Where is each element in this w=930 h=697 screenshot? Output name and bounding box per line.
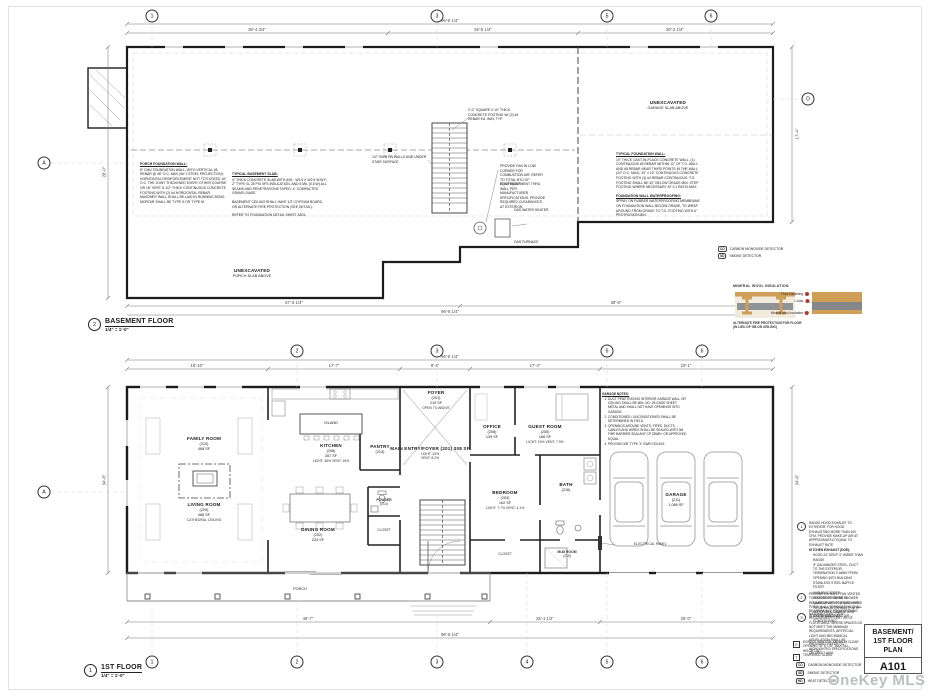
watermark: OneKey MLS [828,672,926,689]
column-footing-note: 2'-0" SQUARE X 10" THICK CONCRETE FOOTIN… [468,108,522,122]
dimension-label: 96'-8 1/4" [441,632,459,637]
callout-marker-icon [805,299,809,303]
room-label-foyer-note: OPEN TO ABOVE [422,406,450,410]
callout-marker-icon [805,292,809,296]
plan-name: 1ST FLOOR [101,664,142,673]
room-label-closet: CLOSET [377,528,391,532]
garage-note-item: OPENINGS AROUND VENTS, PIPES, DUCTS, CAB… [608,424,688,441]
legend-co: CO CARBON MONOXIDE DETECTOR [796,662,861,668]
grid-bubble: 2 [291,656,304,669]
keyed-note-marker: 2 [797,593,806,602]
room-label-bedroom: BEDROOM (203) 162 SF LIGHT: 7.7% VENT: 4… [486,490,524,510]
room-label-foyer: FOYER (201) 219 SF [428,390,445,406]
grid-bubble: 5 [601,345,614,358]
plan-name: BASEMENT FLOOR [105,318,174,327]
garage-note-item: PROVIDE 5/8" TYPE 'X' GWB CEILING. [608,442,688,446]
first-floor-dimensions [106,358,794,640]
porch-foundation-note: PORCH FOUNDATION WALL: 8" CMU FOUNDATION… [140,162,228,204]
dimension-label: 39'-5" [611,300,622,305]
egress-window-note: E EGRESS WINDOW: MINIMUM CLEAR OPENING O… [793,640,861,653]
grid-bubble: 1 [146,10,159,23]
electrical-panel-label: ELECTRICAL PANEL [634,542,667,546]
room-label-powder: POWDER (214) [376,498,391,507]
sheet-title: BASEMENT/ 1ST FLOOR PLAN [865,625,921,658]
detail-callout-mineral-wool: Mineral wool insulation [771,311,809,315]
grid-bubble: 5 [601,656,614,669]
room-label-family: FAMILY ROOM (210) 468 SF [187,436,221,452]
unexcavated-porch-label: UNEXCAVATED PORCH SLAB ABOVE [233,268,271,279]
dimension-label: 96'-8 1/4" [441,354,459,359]
grid-bubble: 2 [291,345,304,358]
dimension-label: 17'-4" [530,363,541,368]
dimension-label: 96'-8 1/4" [441,309,459,314]
garage-note-item: DUCT PENETRATING INTERIOR GARAGE WALL OR… [608,397,688,414]
furnace-label: GAS FURNACE [514,240,556,245]
detail-callout-ijoist: I-Joist [794,299,809,303]
room-label-mudroom: MUD ROOM (215) [557,550,576,559]
room-label-pantry: PANTRY (213) [370,444,390,455]
dimension-label: 30'-2 1/4" [666,27,684,32]
plan-scale: 1/4" = 1'-0" [101,673,142,678]
plan-number-bubble: 1 [84,664,97,677]
dimension-label: 25'-0" [681,616,692,621]
dimension-label: 25'-1 1/2" [536,616,554,621]
vent-equipment-note: VENT EQUIPMENT THRU WALL PER MANUFACTURE… [500,182,546,210]
room-label-island: ISLAND [324,421,338,426]
basement-legend-sd: SD SMOKE DETECTOR [718,253,761,259]
dimension-label: 23'-1" [681,363,692,368]
detail-title: MINERAL WOOL INSULATION [733,284,789,288]
dimension-label: 18'-10" [191,363,204,368]
note-marker: E [793,641,800,648]
dimension-label: 34'-8" [102,475,107,486]
keyed-note-marker: 3 [797,613,806,622]
basement-plan-title: 2 BASEMENT FLOOR 1/4" = 1'-0" [88,318,174,332]
callout-marker-icon [805,311,809,315]
grid-bubble: A [38,157,51,170]
dimension-label: 26'-5 1/4" [474,27,492,32]
detail-callout-floor-sheathing: Floor sheathing [781,292,809,296]
room-label-office: OFFICE (206) 139 SF [483,424,501,440]
dimension-label: 28'-0" [102,167,107,178]
dimension-label: 36'-4 3/4" [248,27,266,32]
room-label-living: LIVING ROOM (209) 468 SF CATHEDRAL CEILI… [187,502,222,522]
grid-bubble: 4 [521,656,534,669]
room-label-entry: MAIN ENTRY/FOYER (201) 308 SF LIGHT: 24%… [390,446,469,461]
grid-bubble: 6 [705,10,718,23]
grid-bubble: 6 [696,656,709,669]
unexcavated-garage-label: UNEXCAVATED GARAGE SLAB ABOVE [648,100,689,111]
grid-bubble: A [38,486,51,499]
room-label-bath: BATH (216) [559,482,572,493]
foundation-wall-note: TYPICAL FOUNDATION WALL: 10" THICK CAST-… [616,152,704,218]
room-label-guest: GUEST ROOM (205) 186 SF LIGHT: 15% VENT:… [526,424,564,444]
grid-bubble: D [802,93,815,106]
dimension-label: 34'-8" [795,475,800,486]
room-label-dining: DINING ROOM (202) 224 SF [301,527,335,543]
grid-bubble: 6 [696,345,709,358]
keyed-note-marker: 1 [797,522,806,531]
tempered-glass-note: T TEMPERED GLASS [793,653,861,661]
dimension-label: 46'-7" [303,616,314,621]
title-block: BASEMENT/ 1ST FLOOR PLAN A101 [864,624,922,674]
grid-bubble: 3 [431,656,444,669]
dimension-label: 17'-4" [795,129,800,140]
stair-gwb-note: 1/2" GWB ON WALLS AND UNDER STAIR SURFAC… [372,155,428,164]
basement-legend-co: CO CARBON MONOXIDE DETECTOR [718,246,783,252]
room-label-kitchen: KITCHEN (208) 287 SF LIGHT: 36% VENT: 18… [313,443,350,463]
plan-linework [0,0,930,697]
plan-number-bubble: 2 [88,318,101,331]
garage-notes: GARAGE NOTES: DUCT PENETRATING INTERIOR … [602,392,688,447]
detail-caption: ALTERNATE FIRE PROTECTION FOR FLOOR (IN … [733,321,801,329]
dimension-label: 17'-7" [329,363,340,368]
garage-note-item: CONDITIONED / UNCONDITIONED SHALL BE DET… [608,415,688,423]
room-label-garage: GARAGE (211) 1,086 SF [665,492,686,508]
dimension-label: 9'-4" [431,363,439,368]
note-marker: T [793,654,800,661]
dimension-label: 57'-3 1/4" [285,300,303,305]
grid-bubble: 5 [601,10,614,23]
basement-slab-note: TYPICAL BASEMENT SLAB: 4" THICK CONCRETE… [232,172,328,218]
grid-bubble: 1 [146,656,159,669]
drawing-sheet: 1 3 5 6 A D 2 3 5 6 A 1 2 3 4 5 6 96'-8 … [0,0,930,697]
plan-scale: 1/4" = 1'-0" [105,327,174,332]
porch-label: PORCH [293,587,307,592]
first-floor-plan-title: 1 1ST FLOOR 1/4" = 1'-0" [84,664,142,678]
dimension-label: 96'-8 1/4" [441,18,459,23]
room-label-closet: CLOSET [498,552,512,556]
water-heater-label: GAS WATER HEATER [514,208,556,213]
